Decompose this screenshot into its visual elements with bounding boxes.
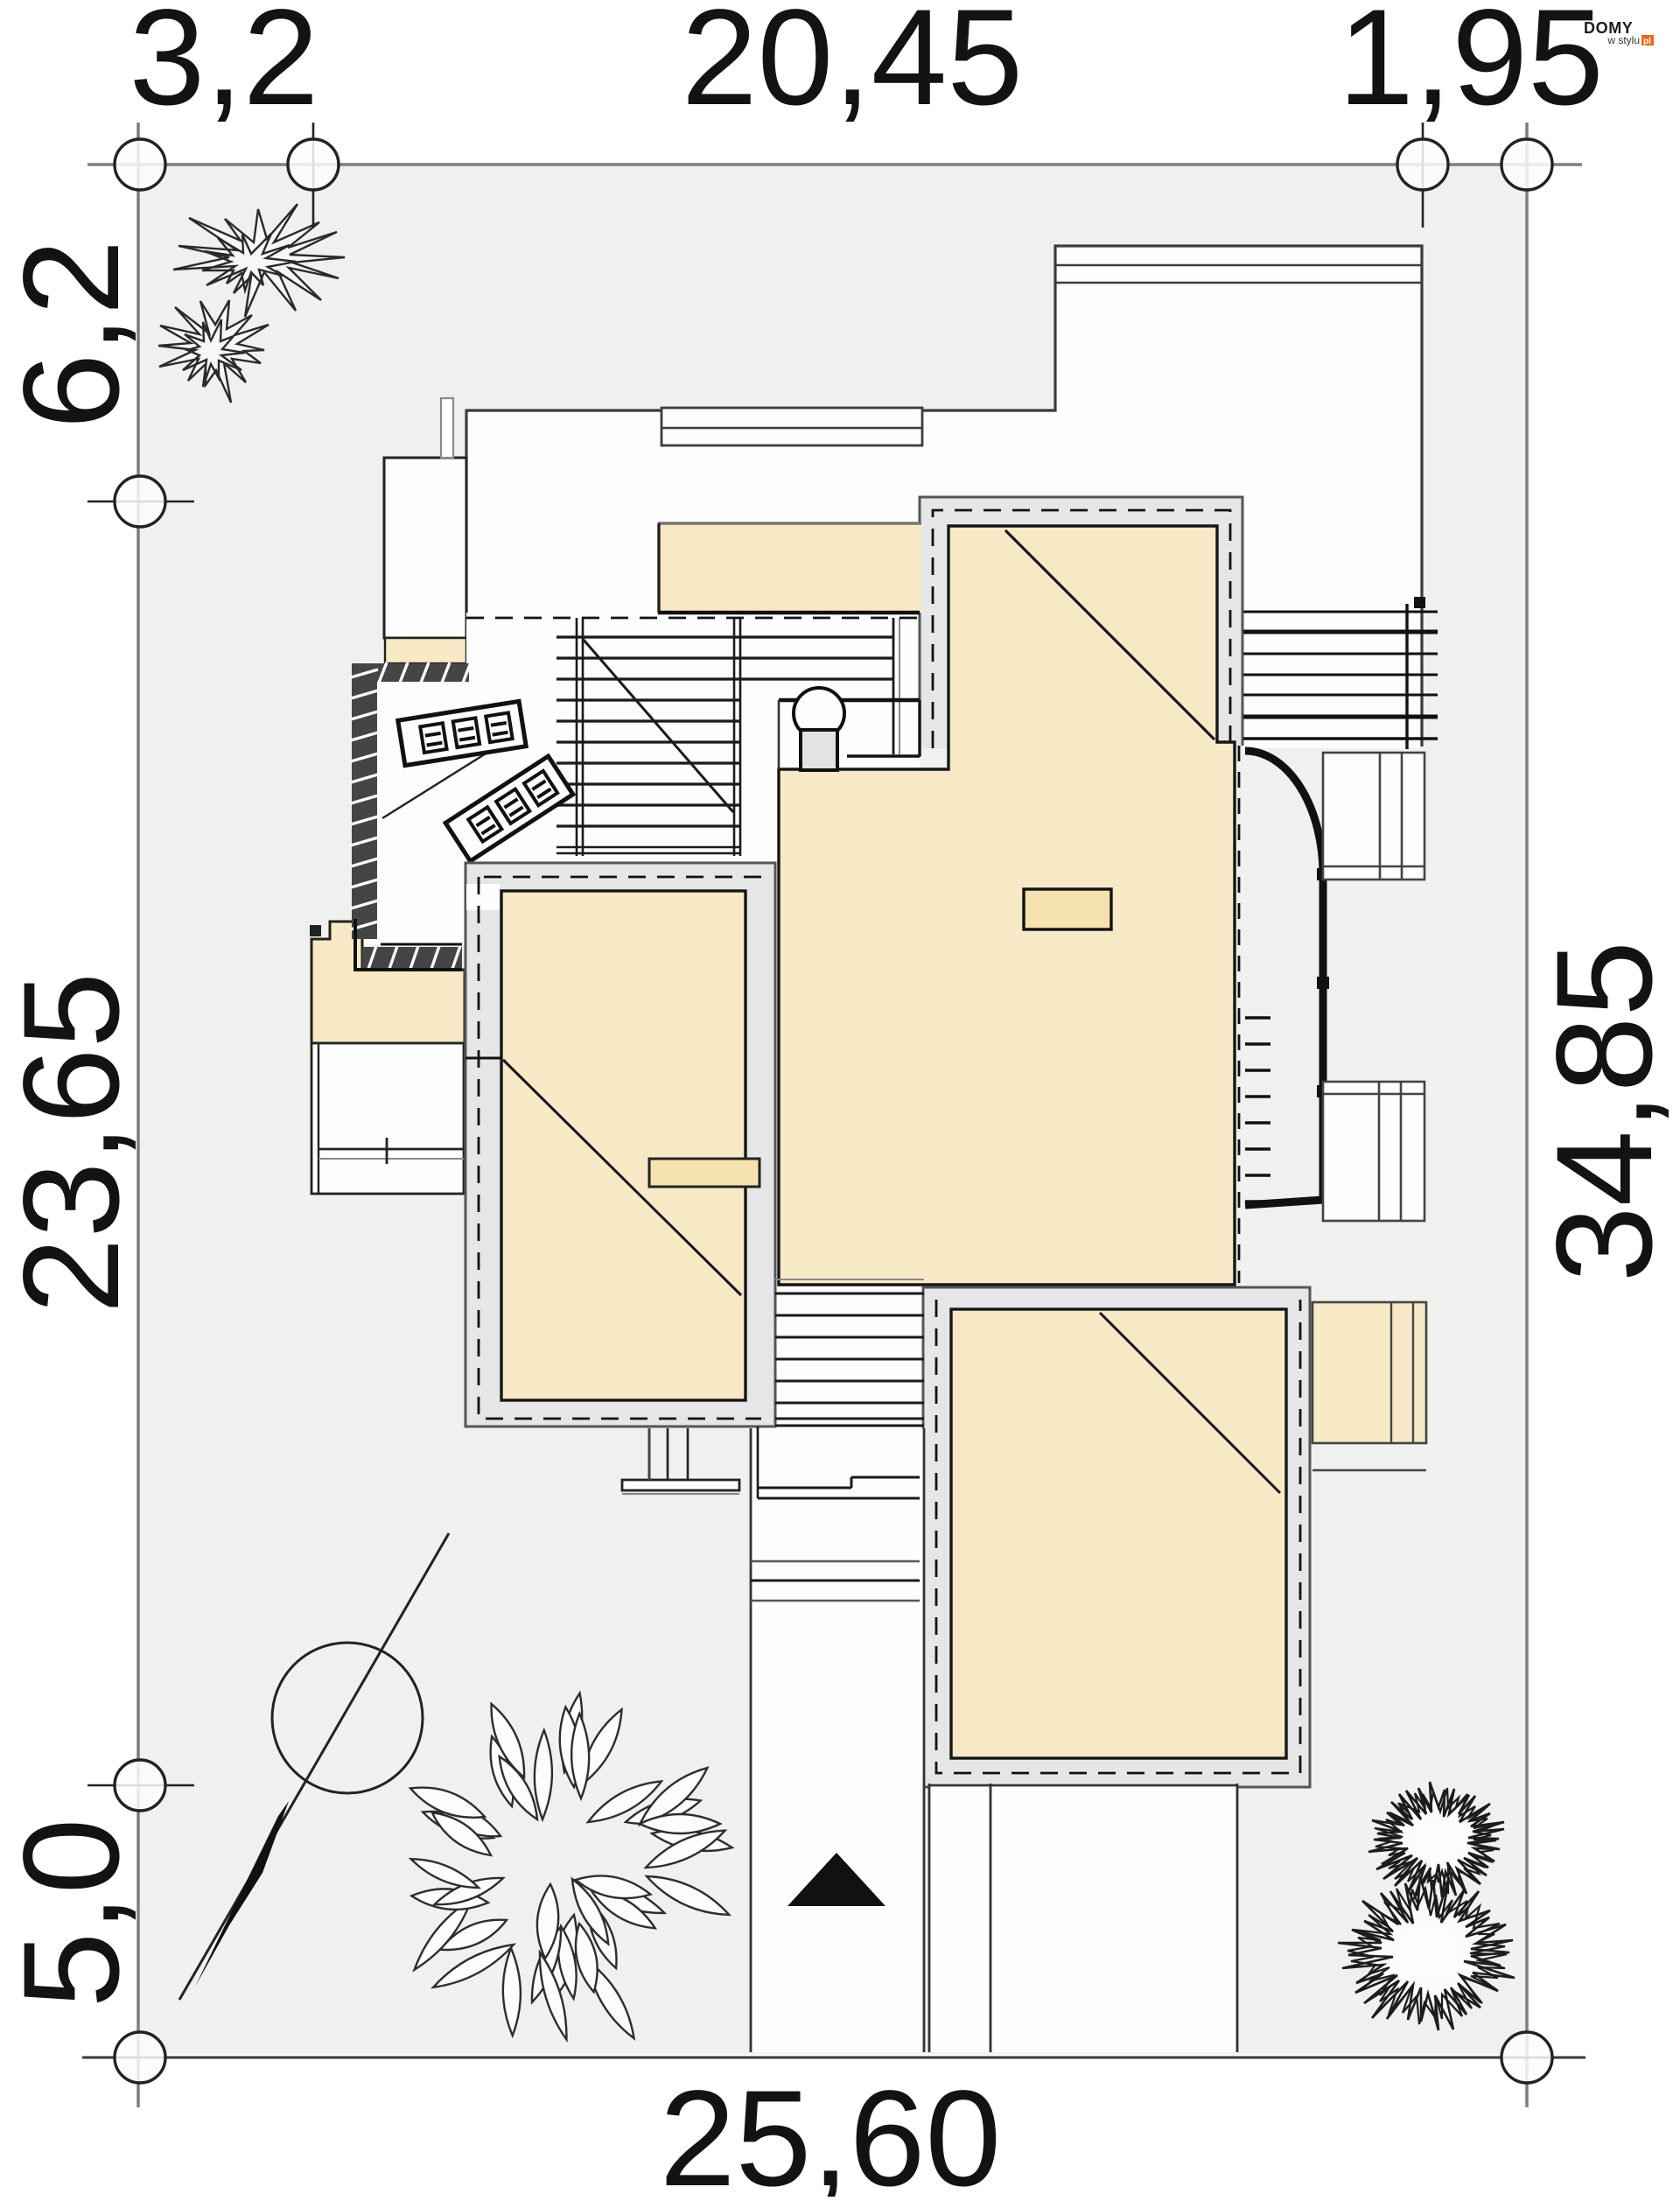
svg-text:w stylu: w stylu — [1606, 34, 1640, 46]
svg-text:6,2: 6,2 — [0, 240, 148, 430]
svg-text:25,60: 25,60 — [660, 2063, 1001, 2197]
svg-text:23,65: 23,65 — [0, 972, 148, 1314]
svg-text:pl: pl — [1643, 37, 1651, 46]
svg-text:20,45: 20,45 — [682, 0, 1023, 134]
svg-text:3,2: 3,2 — [129, 0, 319, 134]
svg-text:1,95: 1,95 — [1338, 0, 1604, 134]
svg-text:34,85: 34,85 — [1529, 941, 1680, 1282]
svg-text:5,0: 5,0 — [0, 1819, 148, 2008]
